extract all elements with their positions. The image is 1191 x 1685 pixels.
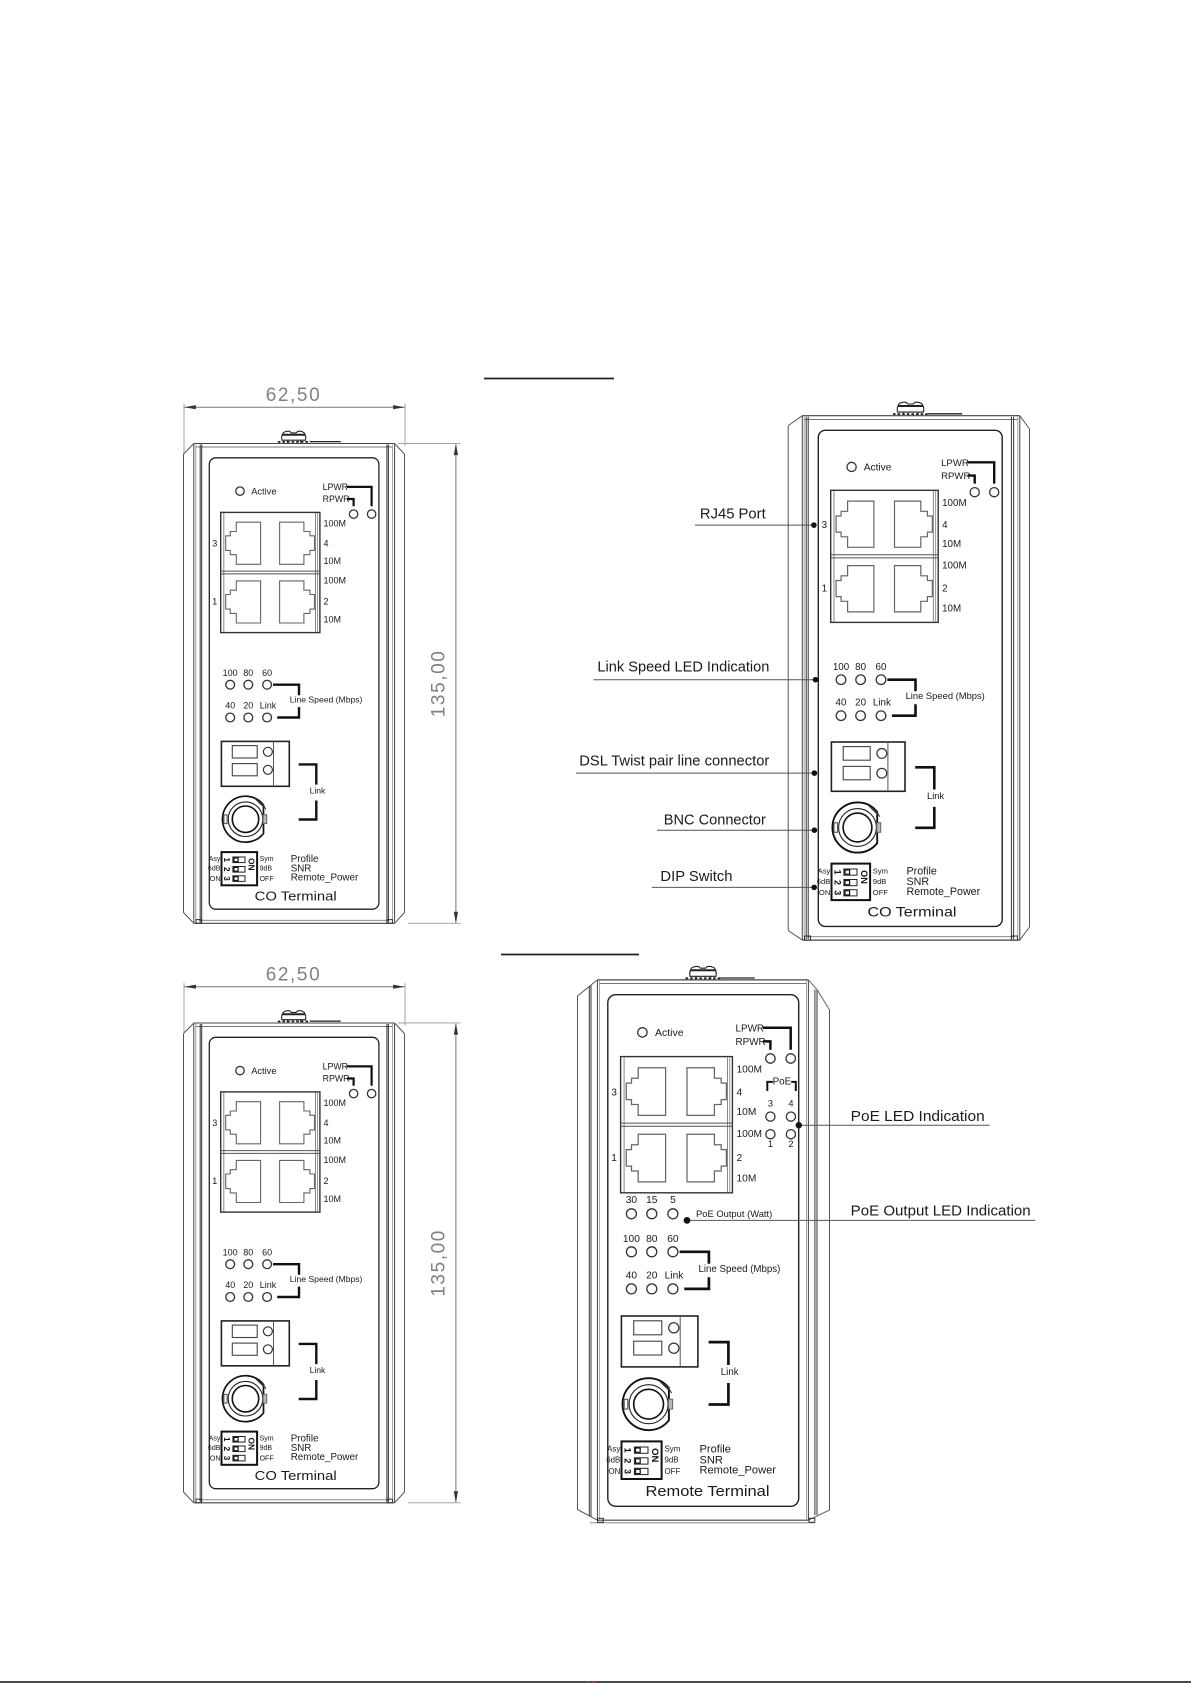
svg-text:PoE LED Indication: PoE LED Indication [851, 1109, 985, 1125]
svg-text:135,00: 135,00 [429, 650, 450, 718]
svg-text:Sym: Sym [873, 866, 888, 875]
svg-text:RPWR: RPWR [323, 494, 350, 504]
svg-text:OFF: OFF [873, 888, 889, 897]
svg-text:60: 60 [876, 662, 887, 673]
svg-text:10M: 10M [942, 603, 961, 614]
svg-text:DSL Twist pair line connector: DSL Twist pair line connector [579, 754, 769, 770]
svg-text:Active: Active [864, 463, 892, 474]
svg-text:LPWR: LPWR [736, 1023, 765, 1034]
svg-text:ON: ON [608, 1467, 620, 1476]
svg-text:Sym: Sym [260, 1436, 274, 1443]
svg-text:2: 2 [737, 1153, 743, 1164]
svg-text:Asy: Asy [607, 1445, 620, 1454]
svg-text:80: 80 [646, 1234, 658, 1245]
svg-text:LPWR: LPWR [941, 458, 969, 469]
svg-text:62,50: 62,50 [266, 965, 322, 986]
svg-text:Link: Link [665, 1271, 685, 1282]
svg-text:Sym: Sym [665, 1445, 681, 1454]
svg-text:1: 1 [212, 596, 217, 606]
svg-text:60: 60 [262, 1248, 272, 1258]
svg-text:Sym: Sym [260, 856, 274, 863]
svg-text:Line Speed (Mbps): Line Speed (Mbps) [290, 1274, 363, 1284]
svg-text:100M: 100M [324, 519, 347, 529]
svg-text:Line Speed (Mbps): Line Speed (Mbps) [699, 1264, 781, 1275]
svg-text:6dB: 6dB [817, 877, 831, 886]
svg-text:Remote Terminal: Remote Terminal [646, 1484, 770, 1500]
svg-text:40: 40 [626, 1271, 638, 1282]
svg-text:15: 15 [646, 1195, 658, 1206]
svg-text:Link: Link [260, 1280, 277, 1290]
svg-text:100: 100 [223, 1248, 238, 1258]
svg-text:2: 2 [222, 867, 231, 872]
svg-text:3: 3 [768, 1098, 773, 1108]
svg-text:9dB: 9dB [260, 1445, 273, 1452]
svg-text:1: 1 [222, 858, 231, 863]
svg-text:62,50: 62,50 [266, 385, 322, 406]
svg-text:40: 40 [836, 698, 847, 709]
svg-text:2: 2 [324, 596, 329, 606]
svg-text:Link: Link [873, 698, 891, 709]
svg-text:ON: ON [247, 1438, 257, 1451]
svg-text:RPWR: RPWR [941, 471, 970, 482]
svg-text:PoE: PoE [773, 1077, 792, 1088]
svg-text:CO Terminal: CO Terminal [255, 1468, 337, 1483]
svg-text:Asy: Asy [209, 856, 221, 863]
svg-text:Remote_Power: Remote_Power [907, 886, 981, 898]
svg-text:2: 2 [788, 1139, 793, 1149]
svg-text:100: 100 [833, 662, 850, 673]
svg-text:RJ45 Port: RJ45 Port [700, 506, 766, 522]
svg-text:40: 40 [225, 1280, 235, 1290]
svg-text:30: 30 [626, 1195, 638, 1206]
svg-text:3: 3 [212, 539, 217, 549]
svg-text:CO Terminal: CO Terminal [868, 904, 957, 920]
svg-text:Link Speed LED Indication: Link Speed LED Indication [597, 659, 769, 675]
svg-text:10M: 10M [324, 1194, 342, 1204]
svg-text:Link: Link [310, 786, 326, 796]
svg-text:60: 60 [667, 1234, 679, 1245]
svg-text:Line Speed (Mbps): Line Speed (Mbps) [906, 690, 985, 701]
svg-text:80: 80 [243, 1248, 253, 1258]
svg-text:2: 2 [623, 1458, 633, 1463]
svg-text:20: 20 [243, 1280, 253, 1290]
svg-text:80: 80 [243, 668, 253, 678]
svg-text:4: 4 [324, 1118, 329, 1128]
svg-text:100M: 100M [942, 498, 967, 509]
svg-text:LPWR: LPWR [323, 1062, 348, 1072]
svg-text:6dB: 6dB [208, 866, 221, 873]
svg-text:DIP Switch: DIP Switch [660, 869, 732, 885]
svg-text:1: 1 [611, 1153, 617, 1164]
svg-text:ON: ON [210, 876, 221, 883]
svg-text:2: 2 [942, 583, 947, 594]
svg-text:2: 2 [833, 880, 843, 885]
svg-text:Active: Active [251, 486, 276, 496]
svg-text:20: 20 [855, 698, 866, 709]
svg-text:4: 4 [942, 520, 948, 531]
svg-text:ON: ON [247, 858, 257, 871]
svg-text:10M: 10M [737, 1173, 757, 1184]
svg-text:Remote_Power: Remote_Power [291, 873, 359, 884]
svg-text:2: 2 [222, 1447, 231, 1452]
svg-text:Line Speed (Mbps): Line Speed (Mbps) [290, 695, 363, 705]
svg-text:Asy: Asy [209, 1436, 221, 1443]
svg-text:3: 3 [623, 1469, 633, 1474]
svg-text:3: 3 [222, 1456, 231, 1461]
svg-text:100M: 100M [324, 1098, 347, 1108]
svg-text:Active: Active [655, 1027, 684, 1039]
svg-text:9dB: 9dB [873, 877, 887, 886]
svg-text:10M: 10M [737, 1107, 757, 1118]
svg-text:ON: ON [649, 1448, 660, 1462]
svg-text:Link: Link [310, 1365, 326, 1375]
svg-text:BNC Connector: BNC Connector [664, 813, 766, 829]
svg-text:3: 3 [212, 1118, 217, 1128]
svg-text:Link: Link [927, 790, 945, 801]
svg-text:6dB: 6dB [606, 1455, 620, 1464]
svg-text:100M: 100M [942, 561, 967, 572]
svg-text:100: 100 [623, 1234, 640, 1245]
svg-text:9dB: 9dB [260, 866, 273, 873]
svg-text:PoE Output (Watt): PoE Output (Watt) [696, 1208, 772, 1219]
svg-text:2: 2 [324, 1176, 329, 1186]
svg-text:20: 20 [646, 1271, 658, 1282]
svg-text:Active: Active [251, 1066, 276, 1076]
svg-text:ON: ON [859, 870, 869, 884]
svg-text:1: 1 [222, 1437, 231, 1442]
svg-text:9dB: 9dB [665, 1455, 679, 1464]
svg-text:100: 100 [223, 668, 238, 678]
svg-text:4: 4 [788, 1098, 793, 1108]
svg-text:60: 60 [262, 668, 272, 678]
svg-text:135,00: 135,00 [429, 1229, 450, 1297]
svg-text:100M: 100M [324, 576, 347, 586]
svg-text:1: 1 [822, 583, 827, 594]
svg-text:1: 1 [768, 1139, 773, 1149]
svg-text:5: 5 [670, 1195, 676, 1206]
svg-text:100M: 100M [737, 1129, 762, 1140]
svg-text:1: 1 [833, 870, 843, 875]
svg-text:3: 3 [611, 1087, 617, 1098]
svg-text:ON: ON [210, 1455, 221, 1462]
svg-text:RPWR: RPWR [323, 1074, 350, 1084]
svg-text:4: 4 [324, 539, 329, 549]
svg-text:PoE Output LED Indication: PoE Output LED Indication [851, 1204, 1031, 1220]
svg-text:OFF: OFF [260, 1455, 274, 1462]
svg-text:10M: 10M [324, 1136, 342, 1146]
svg-text:OFF: OFF [260, 876, 274, 883]
svg-text:ON: ON [819, 888, 830, 897]
svg-text:1: 1 [212, 1176, 217, 1186]
svg-text:100M: 100M [324, 1155, 347, 1165]
svg-text:3: 3 [222, 876, 231, 881]
svg-text:1: 1 [623, 1448, 633, 1453]
svg-text:3: 3 [822, 520, 828, 531]
svg-text:Asy: Asy [818, 866, 831, 875]
svg-text:Remote_Power: Remote_Power [291, 1452, 359, 1463]
svg-text:Remote_Power: Remote_Power [700, 1465, 777, 1477]
svg-text:40: 40 [225, 700, 235, 710]
svg-text:20: 20 [243, 700, 253, 710]
svg-text:6dB: 6dB [208, 1445, 221, 1452]
svg-text:CO Terminal: CO Terminal [255, 888, 337, 903]
svg-text:10M: 10M [942, 539, 961, 550]
svg-text:3: 3 [833, 890, 843, 895]
svg-text:10M: 10M [324, 615, 342, 625]
svg-text:100M: 100M [737, 1065, 762, 1076]
svg-text:4: 4 [737, 1087, 743, 1098]
svg-text:10M: 10M [324, 556, 342, 566]
svg-text:Link: Link [721, 1367, 739, 1378]
svg-text:80: 80 [855, 662, 866, 673]
svg-text:RPWR: RPWR [736, 1037, 766, 1048]
svg-text:Link: Link [260, 700, 277, 710]
svg-text:LPWR: LPWR [323, 482, 348, 492]
svg-text:OFF: OFF [665, 1467, 681, 1476]
